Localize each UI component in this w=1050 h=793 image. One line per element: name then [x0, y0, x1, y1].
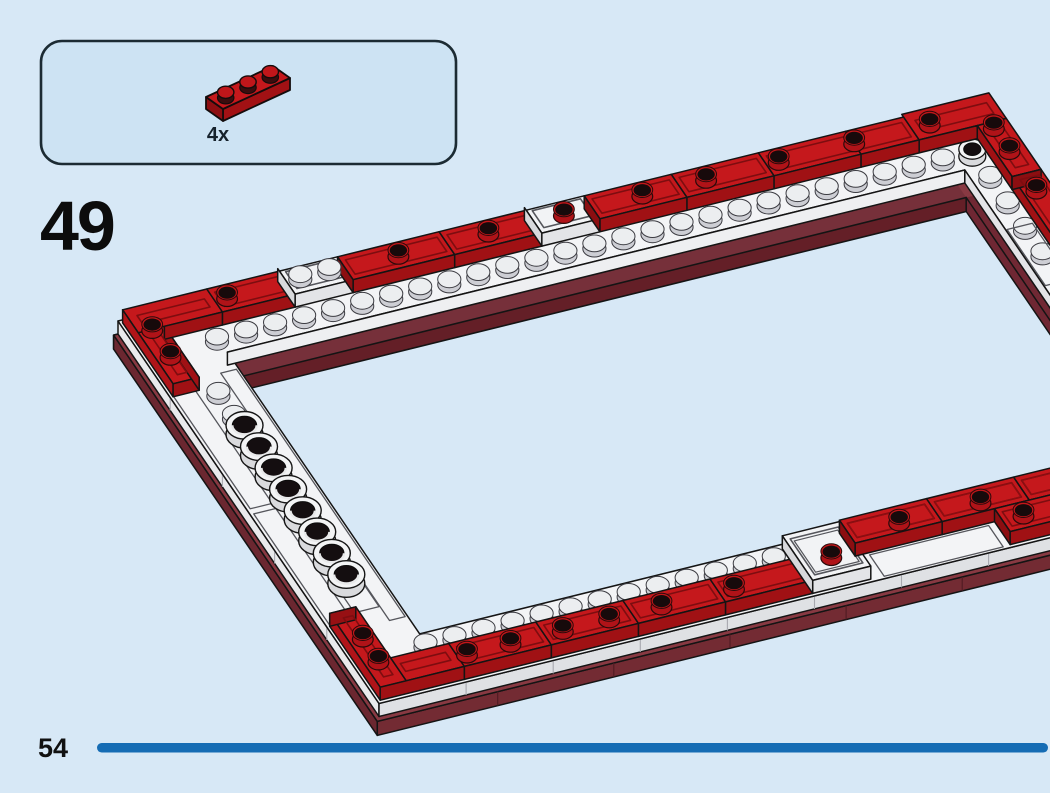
svg-text:49: 49 — [40, 187, 114, 265]
svg-text:4x: 4x — [207, 124, 229, 146]
svg-text:54: 54 — [38, 733, 68, 763]
